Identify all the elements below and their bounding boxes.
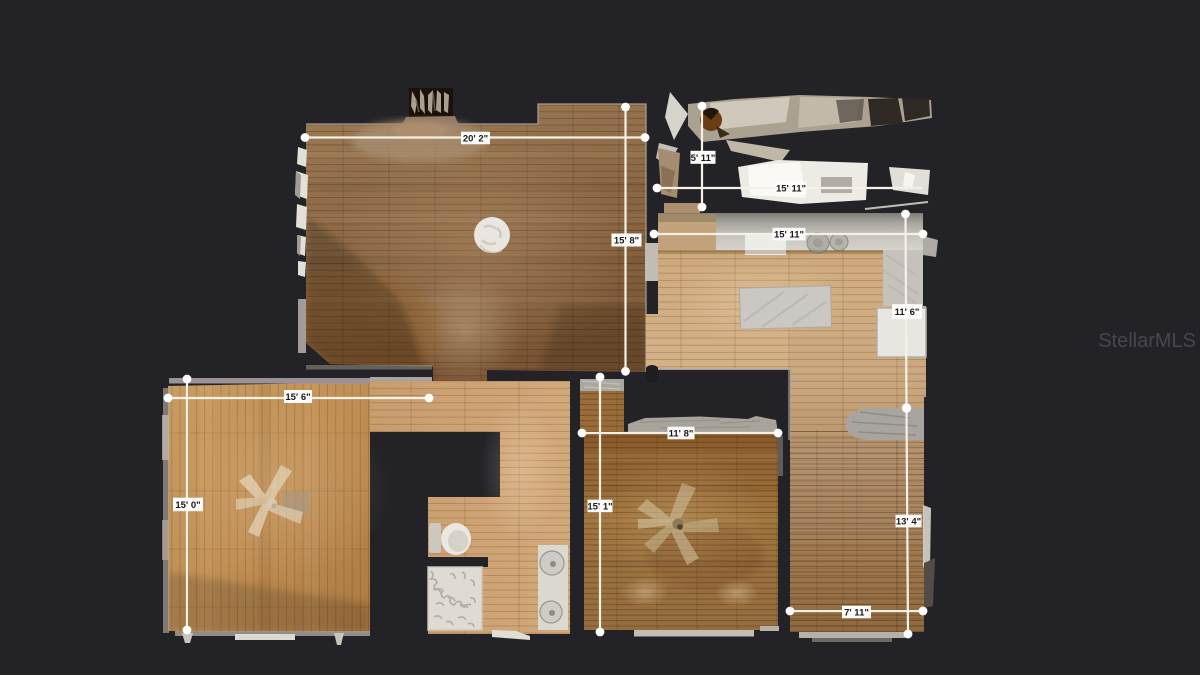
svg-text:11' 6": 11' 6" — [895, 307, 920, 318]
svg-text:StellarMLS: StellarMLS — [1098, 330, 1196, 352]
svg-text:15' 11": 15' 11" — [774, 230, 804, 241]
svg-text:15' 0": 15' 0" — [175, 500, 200, 511]
svg-text:5' 11": 5' 11" — [691, 153, 716, 164]
svg-text:15' 1": 15' 1" — [587, 501, 612, 512]
svg-text:15' 8": 15' 8" — [614, 236, 639, 247]
svg-text:15' 11": 15' 11" — [776, 184, 806, 195]
svg-text:15' 6": 15' 6" — [285, 392, 310, 403]
svg-text:13' 4": 13' 4" — [896, 516, 921, 527]
svg-text:7' 11": 7' 11" — [844, 607, 869, 618]
svg-text:20' 2": 20' 2" — [463, 133, 488, 144]
svg-text:11' 8": 11' 8" — [669, 428, 694, 439]
